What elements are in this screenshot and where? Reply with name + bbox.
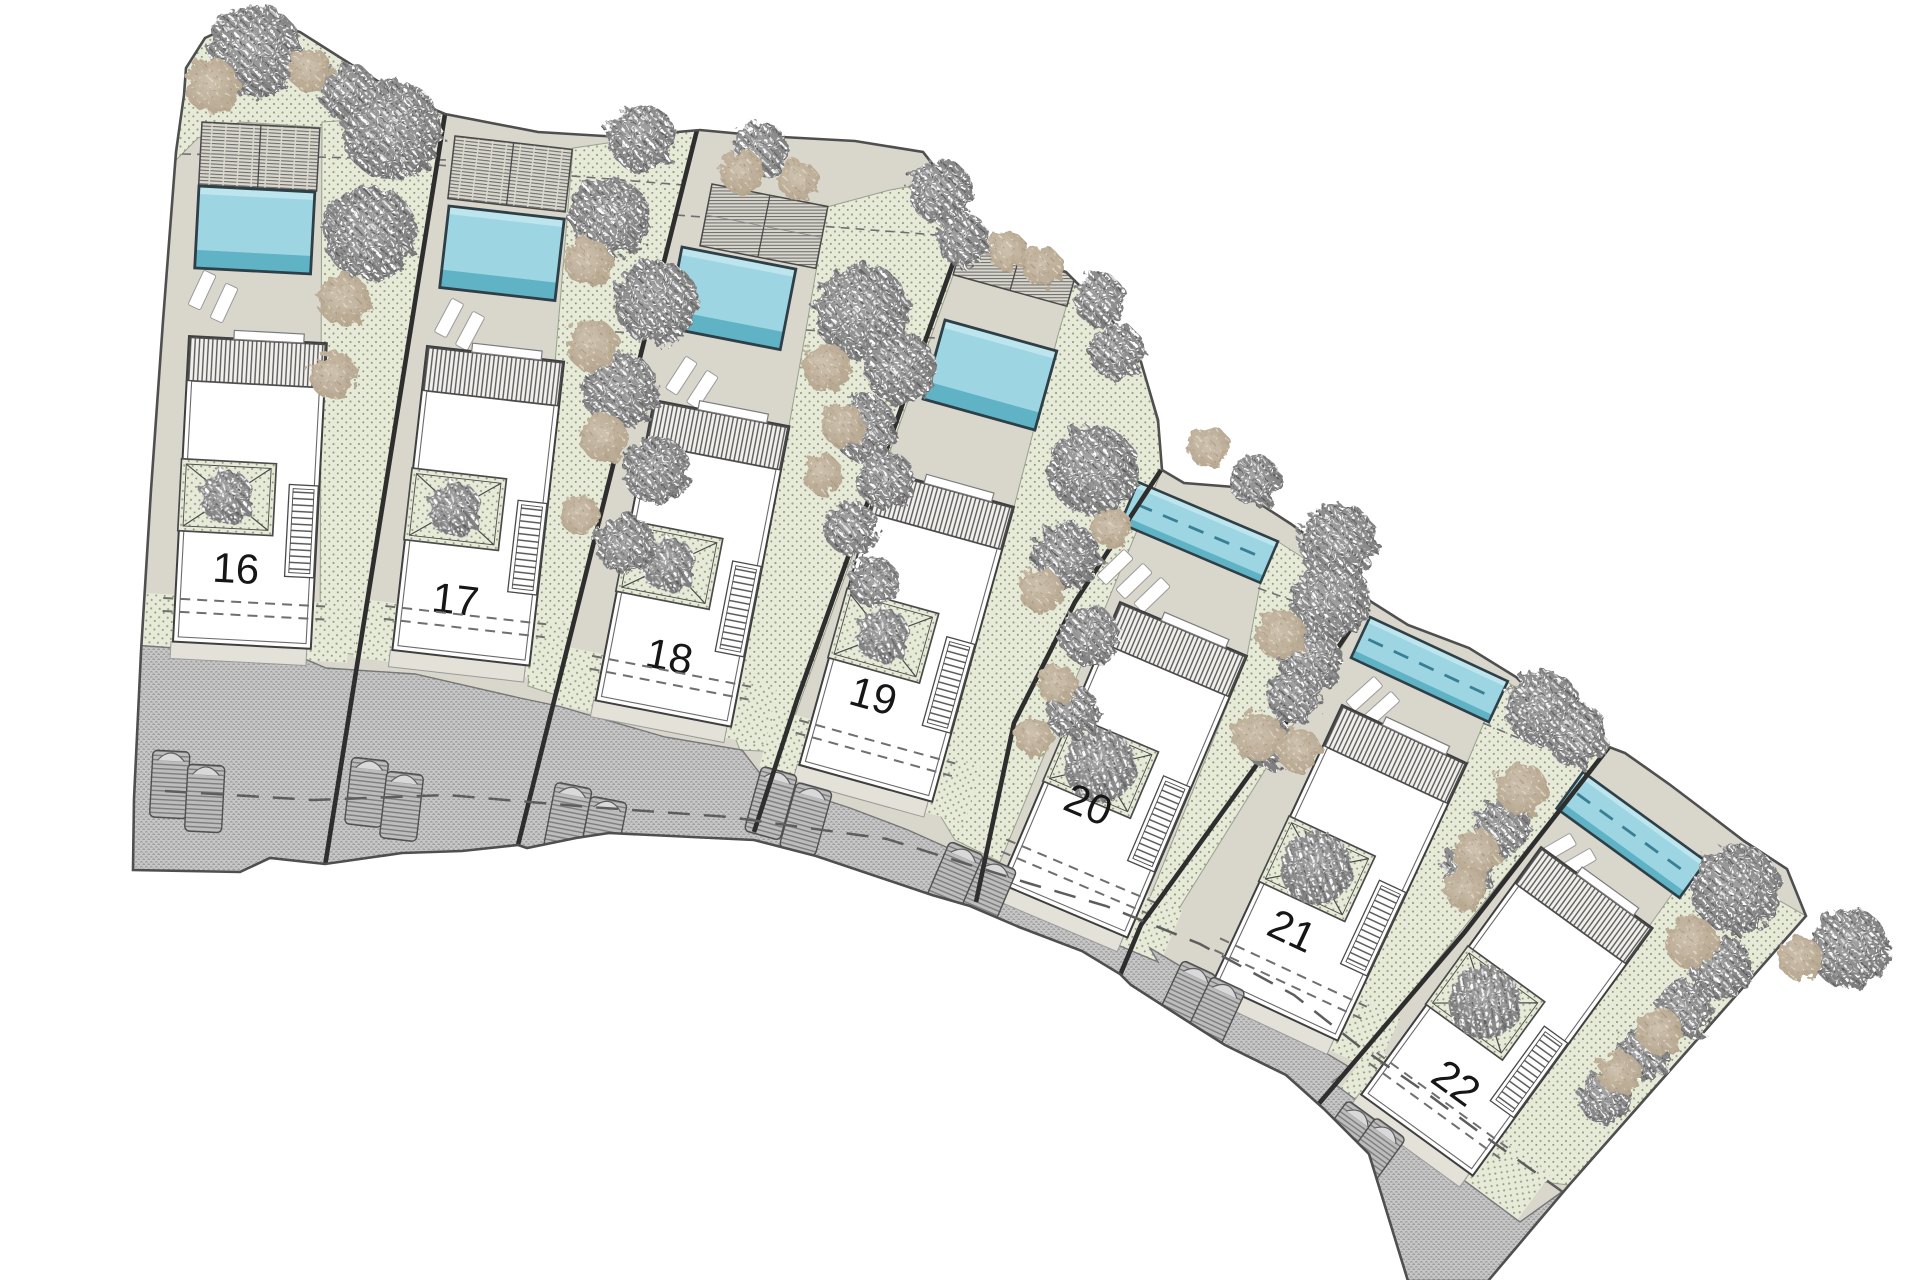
svg-text:16: 16 [211,544,260,593]
svg-text:18: 18 [642,629,697,684]
svg-text:17: 17 [430,573,482,625]
